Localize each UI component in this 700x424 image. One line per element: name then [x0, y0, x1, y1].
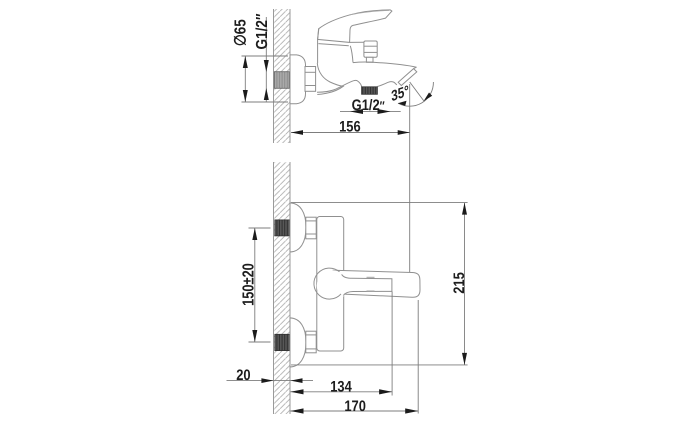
- svg-text:20: 20: [236, 367, 250, 384]
- svg-text:215: 215: [451, 272, 468, 294]
- svg-text:G1/2″: G1/2″: [254, 13, 271, 49]
- svg-text:170: 170: [344, 398, 366, 415]
- svg-text:G1/2″: G1/2″: [352, 97, 385, 114]
- svg-text:156: 156: [339, 119, 361, 136]
- svg-text:∅65: ∅65: [233, 19, 250, 46]
- svg-text:150±20: 150±20: [241, 263, 258, 306]
- svg-text:35°: 35°: [391, 83, 410, 106]
- svg-text:134: 134: [330, 378, 352, 395]
